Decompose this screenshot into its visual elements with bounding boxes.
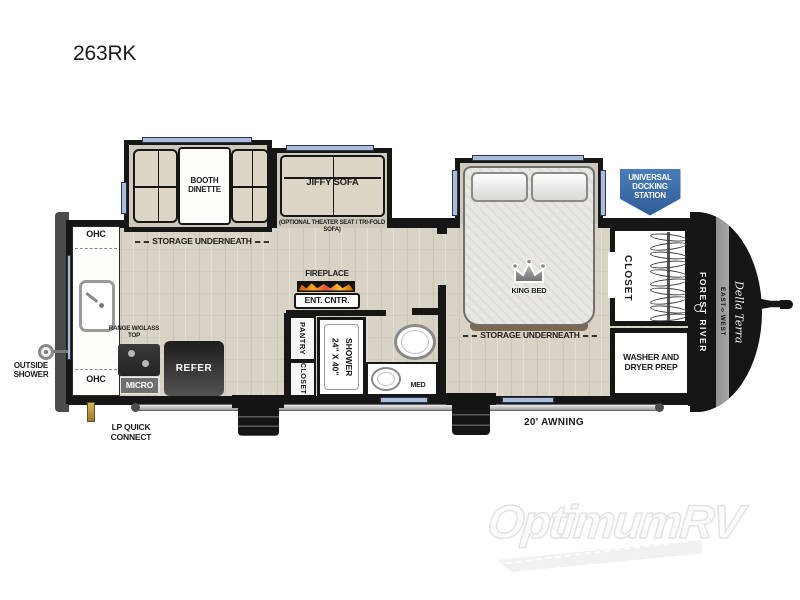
closet-label: CLOSET (622, 248, 633, 308)
king-bed-label: KING BED (491, 287, 567, 295)
shower-pan: 24" X 40" SHOWER (324, 324, 359, 390)
burner-icon (128, 350, 135, 357)
outside-shower-dot (44, 350, 48, 354)
forest-river-logo: FOREST RIVER (698, 272, 708, 353)
dash-decoration (463, 335, 477, 337)
crown-icon (511, 258, 547, 285)
dash-decoration (583, 335, 597, 337)
hitch-coupler (780, 300, 793, 309)
storage-underneath-label: STORAGE UNDERNEATH (455, 331, 605, 341)
storage-underneath-text: STORAGE UNDERNEATH (480, 331, 580, 341)
dinette-bench (133, 149, 178, 223)
model-title: 263RK (73, 42, 136, 66)
pantry: PANTRY (289, 316, 316, 361)
docking-station-badge: UNIVERSAL DOCKING STATION (617, 166, 683, 218)
bedroom-entry-steps (452, 405, 490, 435)
della-terra-logo: Della Terra (733, 281, 746, 344)
washer-dryer-prep: WASHER AND DRYER PREP (610, 328, 692, 398)
slideout-window (452, 170, 458, 216)
docking-station-label: UNIVERSAL DOCKING STATION (624, 173, 676, 201)
slideout-window (121, 182, 127, 214)
slideout-window (600, 170, 606, 216)
bottom-window (502, 397, 554, 403)
top-wall-segment (388, 218, 460, 228)
entry-door-landing (232, 395, 284, 408)
docking-station-shield: UNIVERSAL DOCKING STATION (620, 169, 681, 216)
dash-decoration (135, 241, 149, 243)
jiffy-sofa-label: JIFFY SOFA (280, 178, 385, 189)
entry-steps (238, 408, 279, 436)
fireplace (297, 281, 355, 292)
slideout-window (286, 145, 374, 151)
refrigerator: REFER (164, 341, 224, 396)
cabinet-divider (75, 369, 117, 370)
shower-label: 24" X 40" SHOWER (328, 324, 355, 390)
closet-door-opening (608, 252, 616, 298)
lp-connect-icon (87, 402, 95, 422)
bath-closet: CLOSET (289, 361, 316, 397)
forest-river-bar: FOREST RIVER (690, 212, 716, 412)
shower-stall: 24" X 40" SHOWER (317, 317, 366, 397)
slideout-window (472, 155, 584, 161)
bath-wall (438, 285, 446, 397)
east-west-bar: EAST◊WEST (716, 212, 729, 412)
dash-decoration (255, 241, 269, 243)
forest-river-emblem-icon (694, 304, 702, 312)
dinette-bench (231, 149, 269, 223)
lp-quick-connect-label: LP QUICK CONNECT (94, 423, 168, 442)
ohc-top-label: OHC (72, 229, 120, 239)
range (118, 344, 160, 376)
refer-label: REFER (176, 363, 212, 374)
micro-label: MICRO (126, 381, 153, 391)
slideout-window (142, 137, 252, 143)
outside-shower-stem (53, 350, 68, 353)
bath-wall (437, 220, 447, 234)
dinette-table: BOOTH DINETTE (178, 147, 231, 225)
toilet-bowl (401, 330, 429, 354)
cabinet-divider (75, 248, 117, 249)
della-terra-bar: Della Terra (729, 212, 749, 412)
pillow (471, 172, 528, 202)
flame-icon (299, 283, 354, 291)
microwave: MICRO (120, 377, 159, 394)
ohc-bottom-label: OHC (72, 374, 120, 384)
pantry-label: PANTRY (298, 322, 307, 355)
hitch-arm (746, 296, 782, 312)
sink-drain (99, 303, 104, 308)
fireplace-label: FIREPLACE (294, 270, 360, 279)
storage-underneath-label: STORAGE UNDERNEATH (122, 237, 282, 247)
east-west-logo: EAST◊WEST (719, 287, 726, 336)
outside-shower-label: OUTSIDE SHOWER (0, 362, 62, 380)
awning-end-cap (655, 403, 664, 412)
awning-end-cap (131, 403, 140, 412)
bath-closet-label: CLOSET (299, 363, 306, 394)
optional-sofa-note: (OPTIONAL THEATER SEAT / TRI-FOLD SOFA) (270, 220, 394, 233)
awning-label: 20' AWNING (498, 417, 610, 428)
storage-underneath-text: STORAGE UNDERNEATH (152, 237, 252, 247)
floorplan-canvas: 263RK BOOTH DINETTE STORAGE UNDERNEATH J… (0, 0, 800, 600)
ent-cntr-label: ENT. CNTR. (305, 296, 350, 306)
med-cabinet-label: MED (400, 382, 436, 390)
burner-icon (142, 360, 149, 367)
pillow (531, 172, 588, 202)
dinette-label: BOOTH DINETTE (180, 177, 229, 195)
optimumrv-watermark: OptimumRV (485, 494, 800, 549)
bedroom-door-landing (446, 393, 496, 405)
bath-sink-basin (377, 372, 395, 386)
washer-dryer-label: WASHER AND DRYER PREP (619, 353, 683, 372)
rear-window (67, 255, 71, 360)
entertainment-center: ENT. CNTR. (294, 293, 360, 309)
bottom-window (380, 397, 428, 403)
awning-bar (136, 404, 660, 411)
front-cap: FOREST RIVER EAST◊WEST Della Terra (690, 212, 762, 412)
range-label: RANGE W/GLASS TOP (106, 326, 162, 340)
